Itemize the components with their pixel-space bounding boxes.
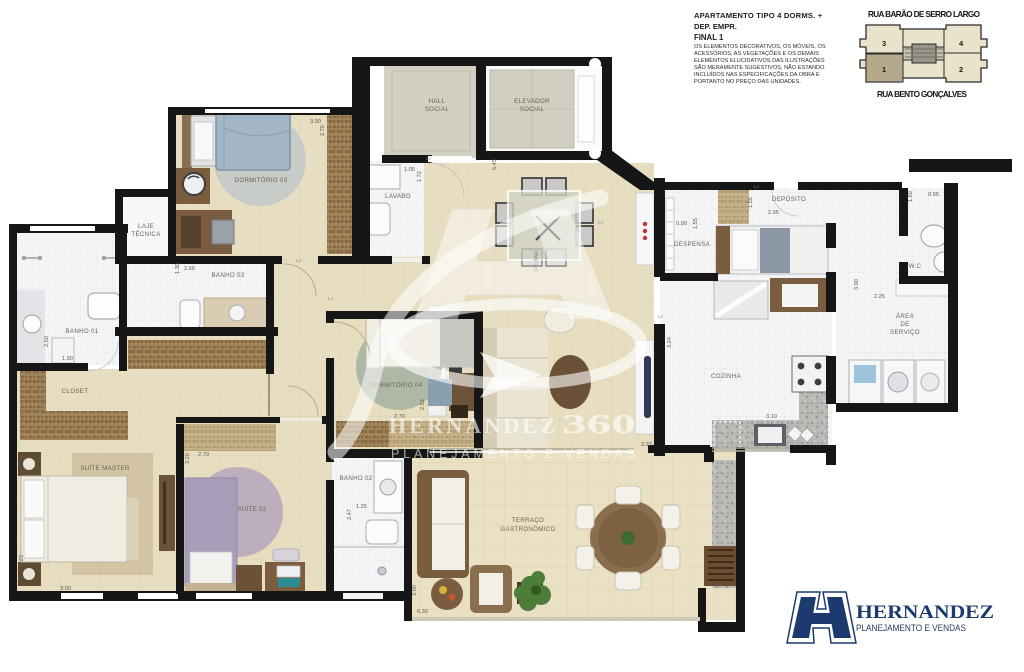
svg-text:ACESSÓRIOS, AS VEGETAÇÕES E OS: ACESSÓRIOS, AS VEGETAÇÕES E OS DEMAIS <box>694 50 819 57</box>
svg-text:LAVABO: LAVABO <box>385 193 411 200</box>
svg-text:INCLUÍDOS NAS ESPECIFICAÇÕES D: INCLUÍDOS NAS ESPECIFICAÇÕES DA OBRA E <box>694 71 820 78</box>
svg-text:CLOSET: CLOSET <box>62 388 89 395</box>
svg-text:3.00: 3.00 <box>60 586 71 592</box>
svg-text:LJ: LJ <box>598 220 603 225</box>
svg-text:3.90: 3.90 <box>854 279 860 290</box>
svg-text:RUA BARÃO DE SERRO LARGO: RUA BARÃO DE SERRO LARGO <box>868 9 981 19</box>
svg-text:SOCIAL: SOCIAL <box>425 106 450 113</box>
svg-text:SÃO MERAMENTE SUGESTIVOS, NÃO: SÃO MERAMENTE SUGESTIVOS, NÃO ESTANDO <box>694 64 825 71</box>
svg-text:LJ: LJ <box>658 314 663 319</box>
svg-text:3: 3 <box>882 39 886 48</box>
svg-text:6.30: 6.30 <box>417 609 428 615</box>
svg-text:5.45: 5.45 <box>492 159 498 170</box>
svg-text:3.00: 3.00 <box>412 585 418 596</box>
svg-text:DE: DE <box>900 321 909 328</box>
svg-text:LJ: LJ <box>754 184 759 189</box>
svg-text:OS ELEMENTOS DECORATIVOS, OS M: OS ELEMENTOS DECORATIVOS, OS MÓVEIS, OS <box>694 43 826 50</box>
svg-text:SUÍTE 02: SUÍTE 02 <box>237 506 266 513</box>
svg-text:DORMITÓRIO 03: DORMITÓRIO 03 <box>235 177 288 184</box>
svg-text:LJ: LJ <box>296 258 301 263</box>
svg-text:TÉCNICA: TÉCNICA <box>131 231 161 238</box>
svg-text:1.55: 1.55 <box>748 197 754 208</box>
svg-text:PLANEJAMENTO E VENDAS: PLANEJAMENTO E VENDAS <box>856 623 966 633</box>
svg-text:ÁREA: ÁREA <box>896 313 915 320</box>
svg-text:2.70: 2.70 <box>320 125 326 136</box>
svg-text:ELEMENTOS ELUCIDATIVOS DAS ILU: ELEMENTOS ELUCIDATIVOS DAS ILUSTRAÇÕES <box>694 57 825 64</box>
svg-text:2.47: 2.47 <box>347 509 353 520</box>
svg-text:2.70: 2.70 <box>198 452 209 458</box>
svg-text:1: 1 <box>882 65 886 74</box>
svg-text:3.24: 3.24 <box>667 337 673 348</box>
svg-text:GASTRONÔMICO: GASTRONÔMICO <box>500 526 555 533</box>
svg-text:LJ: LJ <box>426 156 431 161</box>
svg-text:TERRAÇO: TERRAÇO <box>512 517 544 524</box>
svg-text:2: 2 <box>959 65 963 74</box>
svg-text:1.90: 1.90 <box>62 356 73 362</box>
svg-text:PORTANTO NO PREÇO DAS UNIDADES: PORTANTO NO PREÇO DAS UNIDADES. <box>694 79 801 85</box>
svg-text:ELEVADOR: ELEVADOR <box>514 98 550 105</box>
svg-text:2.50: 2.50 <box>44 336 50 347</box>
svg-text:DEP. EMPR.: DEP. EMPR. <box>694 22 737 31</box>
svg-text:3.30: 3.30 <box>310 119 321 125</box>
svg-text:BANHO 02: BANHO 02 <box>339 475 372 482</box>
svg-text:2.60: 2.60 <box>184 266 195 272</box>
svg-text:DESPENSA: DESPENSA <box>674 241 711 248</box>
svg-text:1.55: 1.55 <box>693 218 699 229</box>
svg-text:SUÍTE MASTER: SUÍTE MASTER <box>80 465 130 472</box>
svg-text:1.05: 1.05 <box>404 167 415 173</box>
svg-text:SOCIAL: SOCIAL <box>520 106 545 113</box>
svg-text:APARTAMENTO TIPO 4 DORMS. +: APARTAMENTO TIPO 4 DORMS. + <box>694 11 823 20</box>
svg-text:COZINHA: COZINHA <box>711 373 742 380</box>
svg-text:360: 360 <box>562 409 636 439</box>
svg-text:HALL: HALL <box>429 98 446 105</box>
svg-text:HERNANDEZ: HERNANDEZ <box>856 602 994 623</box>
svg-text:1.72: 1.72 <box>417 171 423 182</box>
svg-text:0.95: 0.95 <box>928 192 939 198</box>
svg-text:SERVIÇO: SERVIÇO <box>890 329 920 336</box>
svg-text:LAJE: LAJE <box>138 223 154 230</box>
svg-text:BANHO 03: BANHO 03 <box>211 272 244 279</box>
svg-text:0.90: 0.90 <box>676 221 687 227</box>
svg-text:2.25: 2.25 <box>874 294 885 300</box>
svg-text:DEPÓSITO: DEPÓSITO <box>772 196 806 203</box>
svg-text:2.05: 2.05 <box>768 210 779 216</box>
svg-text:1.60: 1.60 <box>908 191 914 202</box>
svg-text:HERNANDEZ: HERNANDEZ <box>389 413 555 438</box>
svg-text:3.22: 3.22 <box>641 442 652 448</box>
svg-text:BANHO 01: BANHO 01 <box>65 328 98 335</box>
svg-text:4.23: 4.23 <box>19 555 25 566</box>
svg-text:RUA BENTO GONÇALVES: RUA BENTO GONÇALVES <box>877 90 968 99</box>
svg-text:FINAL 1: FINAL 1 <box>694 33 724 42</box>
svg-text:1.30: 1.30 <box>175 263 181 274</box>
svg-text:3.20: 3.20 <box>185 453 191 464</box>
svg-text:1.25: 1.25 <box>356 504 367 510</box>
svg-text:2.52: 2.52 <box>420 399 426 410</box>
svg-text:3.10: 3.10 <box>766 414 777 420</box>
svg-text:W.C: W.C <box>909 263 922 270</box>
svg-text:LJ: LJ <box>328 296 333 301</box>
